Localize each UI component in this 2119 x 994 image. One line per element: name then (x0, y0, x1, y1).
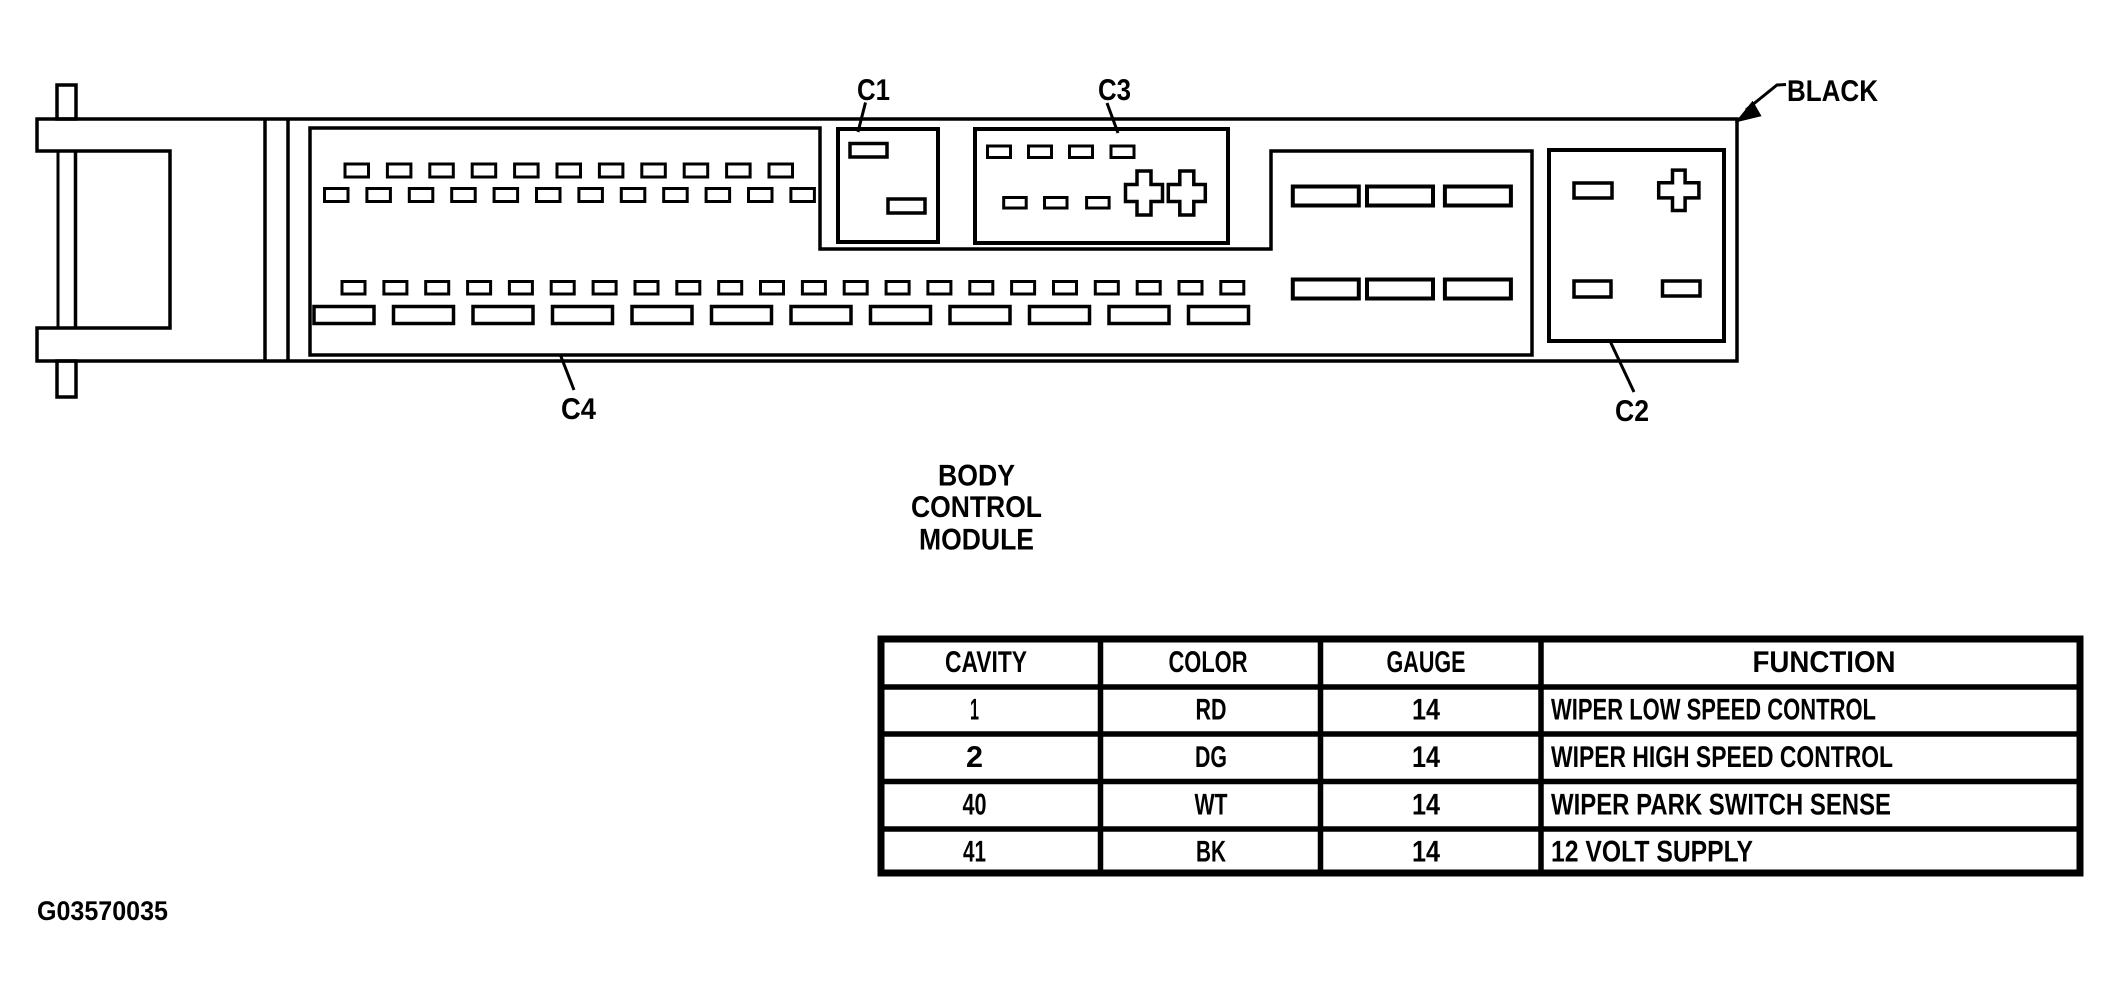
svg-text:COLOR: COLOR (1169, 646, 1248, 679)
svg-text:BLACK: BLACK (1787, 75, 1878, 108)
svg-text:40: 40 (963, 789, 987, 822)
svg-text:WIPER PARK SWITCH SENSE: WIPER PARK SWITCH SENSE (1551, 789, 1891, 822)
svg-text:C4: C4 (561, 393, 596, 426)
svg-text:41: 41 (963, 836, 986, 869)
svg-text:FUNCTION: FUNCTION (1753, 646, 1896, 679)
svg-text:WIPER LOW SPEED CONTROL: WIPER LOW SPEED CONTROL (1551, 694, 1876, 727)
svg-text:DG: DG (1195, 741, 1227, 774)
svg-text:WIPER HIGH SPEED CONTROL: WIPER HIGH SPEED CONTROL (1551, 741, 1893, 774)
svg-text:14: 14 (1412, 694, 1440, 727)
svg-text:12 VOLT SUPPLY: 12 VOLT SUPPLY (1551, 836, 1753, 869)
svg-text:G03570035: G03570035 (37, 896, 168, 926)
svg-text:CAVITY: CAVITY (945, 646, 1027, 679)
svg-text:14: 14 (1412, 836, 1440, 869)
svg-text:BODY: BODY (938, 460, 1015, 493)
svg-text:CONTROL: CONTROL (911, 491, 1042, 524)
svg-text:C2: C2 (1615, 395, 1649, 428)
svg-text:C1: C1 (857, 74, 890, 107)
svg-text:14: 14 (1412, 741, 1440, 774)
svg-text:14: 14 (1412, 789, 1440, 822)
svg-text:BK: BK (1196, 836, 1226, 869)
svg-text:RD: RD (1196, 694, 1227, 727)
svg-text:2: 2 (966, 741, 983, 774)
svg-text:WT: WT (1195, 789, 1228, 822)
svg-text:C3: C3 (1098, 74, 1131, 107)
svg-text:1: 1 (970, 694, 979, 727)
svg-text:GAUGE: GAUGE (1387, 646, 1466, 679)
svg-text:MODULE: MODULE (919, 524, 1034, 557)
